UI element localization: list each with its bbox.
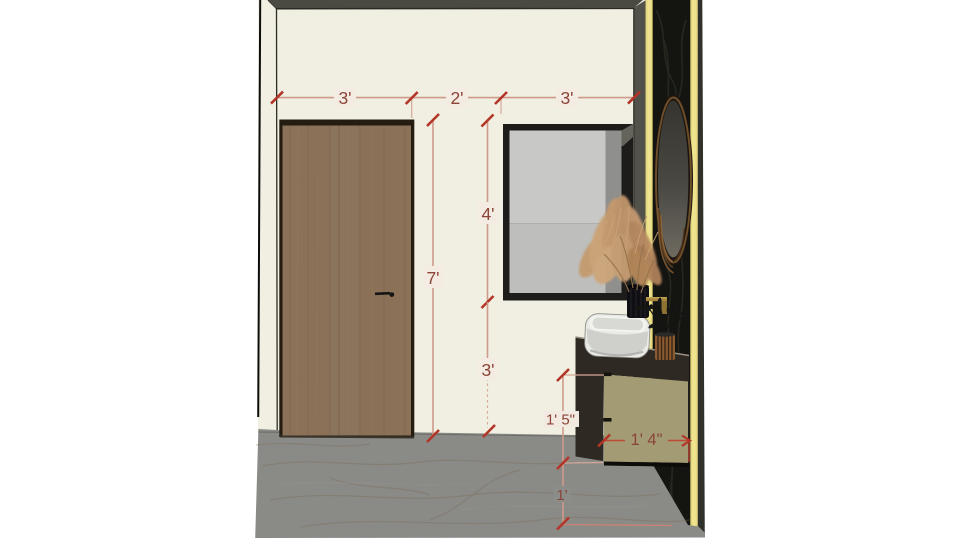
svg-text:3': 3' [560, 88, 573, 108]
svg-text:4': 4' [481, 204, 494, 224]
svg-text:1' 5": 1' 5" [546, 412, 575, 429]
svg-text:2': 2' [450, 88, 463, 108]
svg-text:1' 4": 1' 4" [631, 431, 663, 449]
svg-text:3': 3' [338, 88, 351, 108]
svg-text:1': 1' [556, 487, 567, 504]
svg-text:7': 7' [426, 268, 439, 288]
svg-text:3': 3' [481, 360, 494, 380]
